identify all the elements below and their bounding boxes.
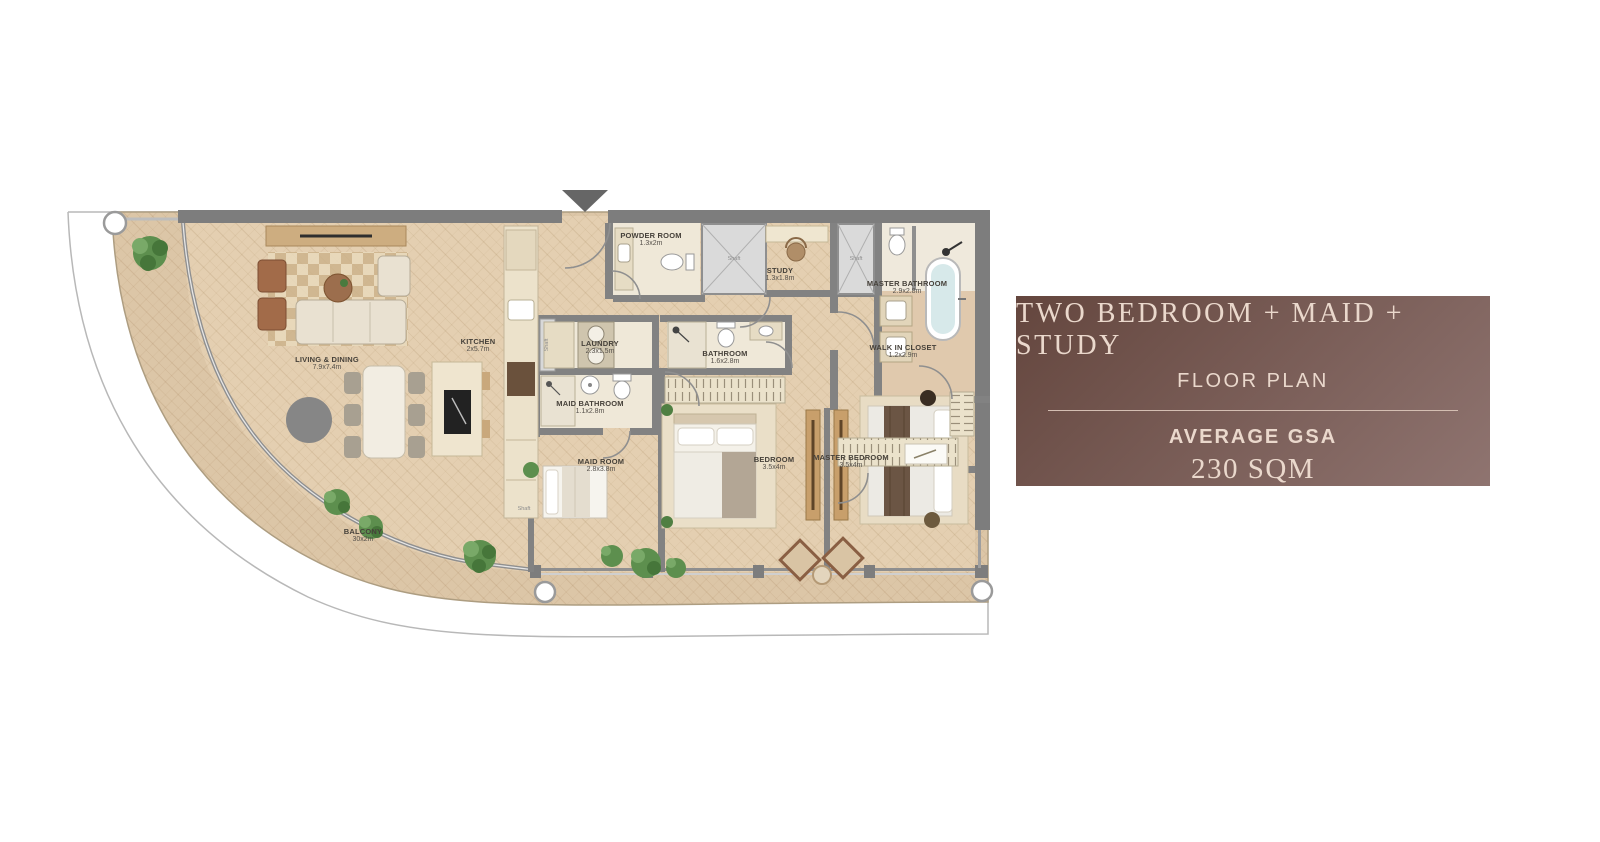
laundry-fixtures xyxy=(544,322,614,368)
panel-area-value: 230 SQM xyxy=(1191,453,1315,486)
plant-icon xyxy=(359,515,383,539)
info-panel: TWO BEDROOM + MAID + STUDY FLOOR PLAN AV… xyxy=(1016,296,1490,486)
entrance-arrow-icon xyxy=(562,190,608,212)
plant-icon xyxy=(631,548,661,578)
plant-icon xyxy=(601,545,623,567)
panel-divider xyxy=(1048,410,1458,411)
canvas: LIVING & DINING 7.9x7.4m KITCHEN 2x5.7m … xyxy=(0,0,1600,842)
plant-icon xyxy=(324,489,350,515)
panel-area-label: AVERAGE GSA xyxy=(1169,426,1337,449)
bedroom-furniture xyxy=(661,377,785,528)
plant-icon xyxy=(666,558,686,578)
panel-title: TWO BEDROOM + MAID + STUDY xyxy=(1016,298,1490,362)
panel-subtitle: FLOOR PLAN xyxy=(1177,370,1329,393)
